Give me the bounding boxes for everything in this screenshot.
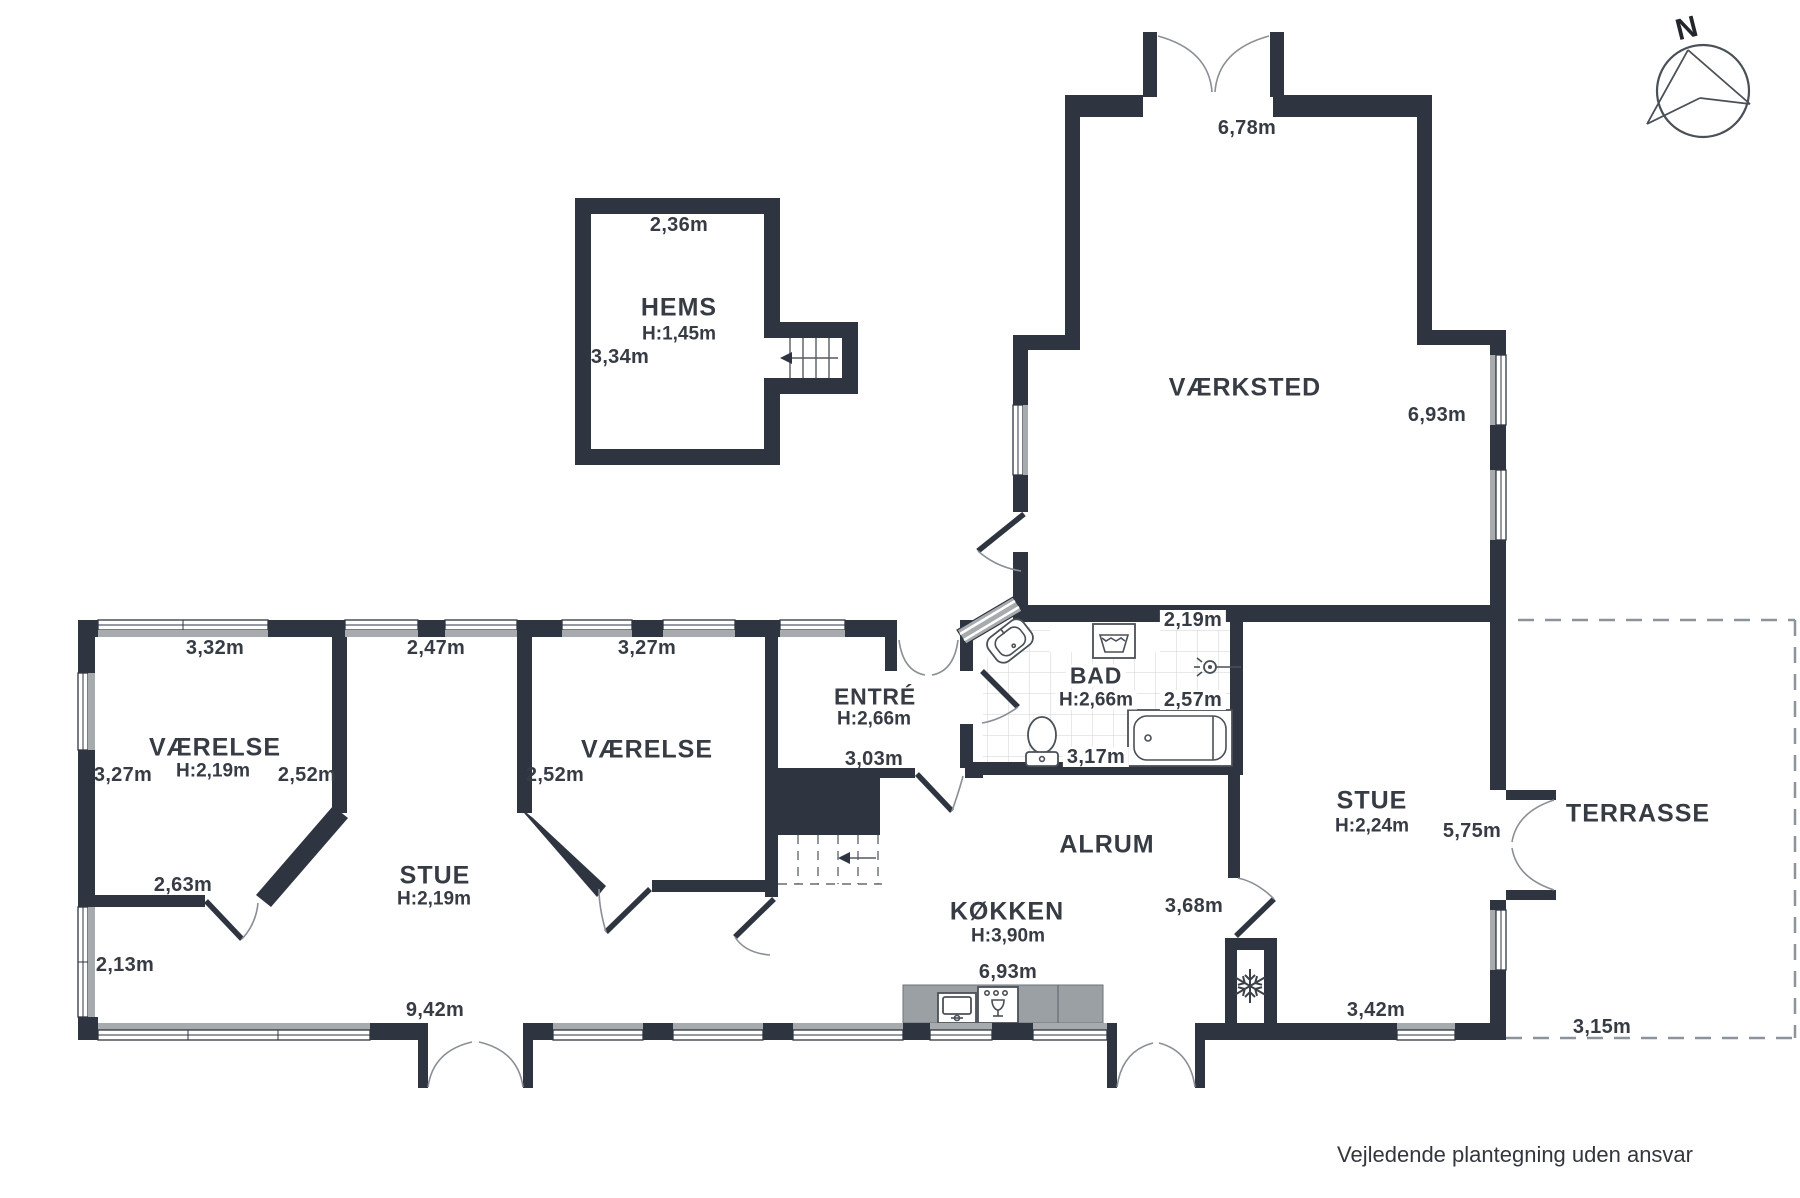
dim-vaerelse-left-bottom: 2,63m: [154, 875, 212, 895]
dishwasher-icon: [978, 987, 1018, 1023]
dim-vaerksted-right: 6,93m: [1408, 405, 1466, 425]
dim-koekken-right: 3,68m: [1165, 896, 1223, 916]
height-entre: H:2,66m: [837, 710, 911, 729]
room-label-stue-right: STUE: [1337, 789, 1408, 814]
freezer-icon: [1233, 969, 1267, 1003]
dim-bad-top: 2,19m: [1160, 610, 1226, 630]
dim-hems-top: 2,36m: [650, 215, 708, 235]
height-vaerelse-left: H:2,19m: [176, 762, 250, 781]
hems-stairs: [780, 338, 838, 378]
height-koekken: H:3,90m: [971, 927, 1045, 946]
height-hems: H:1,45m: [642, 325, 716, 344]
main-stairs-dashed: [778, 835, 882, 884]
room-label-koekken: KØKKEN: [950, 900, 1064, 925]
windows: [78, 355, 1506, 1040]
height-stue-right: H:2,24m: [1335, 817, 1409, 836]
dim-vaerelse-mid-top: 3,27m: [618, 638, 676, 658]
dim-entre-bottom: 3,03m: [845, 749, 903, 769]
room-label-terrasse: TERRASSE: [1566, 802, 1710, 827]
dim-hems-left: 3,34m: [591, 347, 649, 367]
dim-terrasse-bottom: 3,15m: [1573, 1017, 1631, 1037]
dim-vaerelse-mid-left: 2,52m: [526, 765, 584, 785]
room-label-bad: BAD: [1066, 665, 1126, 688]
doors: [206, 36, 1554, 1087]
height-stue-left: H:2,19m: [397, 890, 471, 909]
dim-vaerksted-top: 6,78m: [1218, 118, 1276, 138]
kitchen-sink-icon: [938, 993, 976, 1023]
dim-stue-left-top: 2,47m: [407, 638, 465, 658]
dim-stue-left-wall: 2,13m: [96, 955, 154, 975]
dim-vaerelse-left-right: 2,52m: [278, 765, 336, 785]
room-label-vaerksted: VÆRKSTED: [1169, 376, 1321, 401]
dim-stue-right-bottom: 3,42m: [1347, 1000, 1405, 1020]
room-label-hems: HEMS: [641, 296, 717, 321]
floor-plan: 2,36m HEMS H:1,45m 3,34m 6,78m VÆRKSTED …: [0, 0, 1800, 1198]
room-label-vaerelse-mid: VÆRELSE: [581, 738, 713, 763]
washing-machine-icon: [1093, 624, 1135, 658]
floor-plan-drawing: [0, 0, 1800, 1198]
room-label-entre: ENTRÉ: [834, 686, 916, 709]
room-label-alrum: ALRUM: [1059, 833, 1154, 858]
bathtub-icon: [1128, 710, 1232, 766]
room-label-stue-left: STUE: [400, 864, 471, 889]
dim-bad-right: 2,57m: [1160, 690, 1226, 710]
compass-icon: [1647, 45, 1750, 137]
room-label-vaerelse-left: VÆRELSE: [149, 736, 281, 761]
dim-vaerelse-left-left: 3,27m: [94, 765, 152, 785]
dim-bad-bottom: 3,17m: [1063, 747, 1129, 767]
terrace-boundary: [1506, 620, 1795, 1038]
walls: [78, 32, 1556, 1088]
dim-stue-left-bottom: 9,42m: [406, 1000, 464, 1020]
dim-vaerelse-left-top: 3,32m: [186, 638, 244, 658]
disclaimer-text: Vejledende plantegning uden ansvar: [1337, 1142, 1693, 1168]
dim-koekken-bottom: 6,93m: [979, 962, 1037, 982]
kitchen-counter: [903, 985, 1103, 1023]
height-bad: H:2,66m: [1055, 691, 1137, 710]
toilet-icon: [1026, 717, 1058, 766]
dim-stue-right-wall: 5,75m: [1443, 821, 1501, 841]
